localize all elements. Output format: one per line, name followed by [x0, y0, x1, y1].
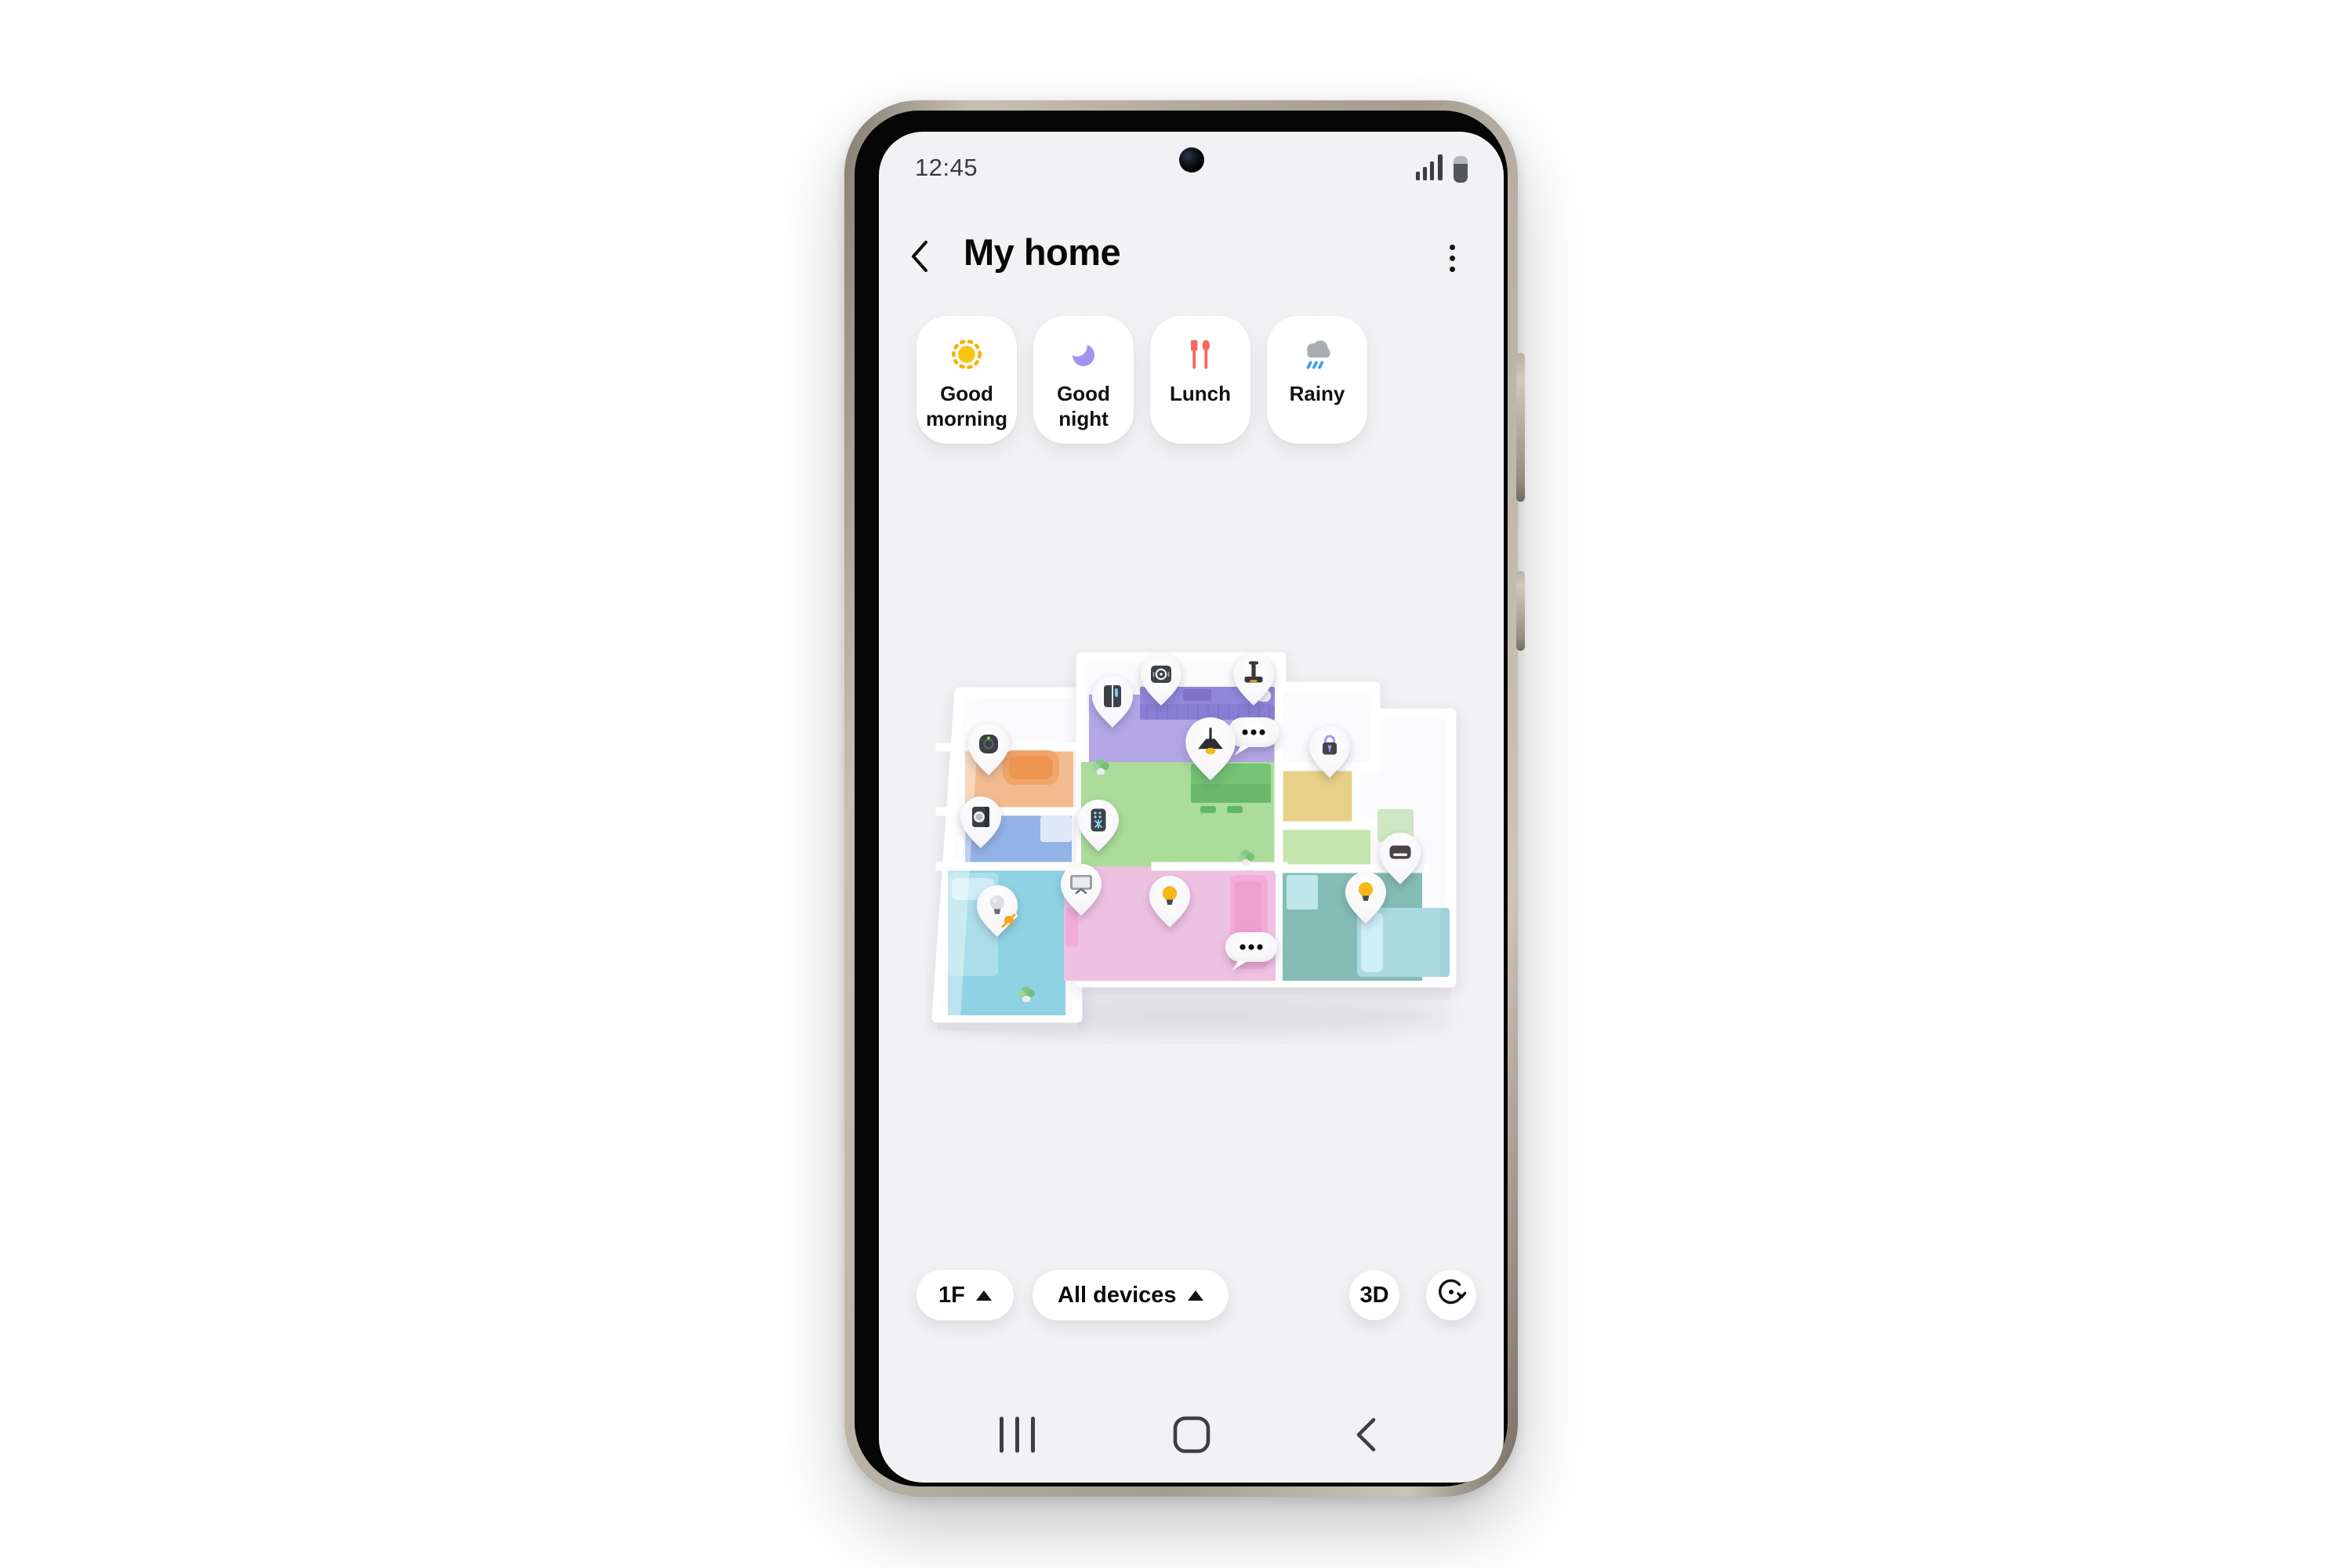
- back-button[interactable]: [907, 237, 934, 276]
- bed-right-foot: [1440, 908, 1450, 977]
- view-3d-label: 3D: [1359, 1283, 1388, 1308]
- floor-label: 1F: [938, 1283, 965, 1308]
- floor-map[interactable]: [924, 649, 1468, 1044]
- status-time: 12:45: [915, 154, 978, 182]
- volume-button: [1516, 353, 1525, 502]
- desktop-canvas: 12:45: [0, 0, 2352, 1568]
- routine-label: Rainy: [1290, 381, 1345, 406]
- routine-card-good-morning[interactable]: Good morning: [916, 316, 1017, 444]
- cyan-cube: [1287, 875, 1318, 909]
- device-filter-chip[interactable]: All devices: [1033, 1270, 1229, 1320]
- floor-selector-chip[interactable]: 1F: [916, 1270, 1014, 1320]
- more-options-button[interactable]: [1436, 240, 1468, 276]
- phone-frame: 12:45: [844, 100, 1518, 1497]
- signal-icon: [1416, 154, 1445, 184]
- navigation-bar: [879, 1407, 1504, 1462]
- dining-table-face: [1191, 784, 1271, 803]
- routine-label: Lunch: [1170, 381, 1231, 406]
- phone-bezel: 12:45: [855, 111, 1508, 1486]
- chevron-up-icon: [1188, 1290, 1203, 1301]
- recents-button[interactable]: [994, 1414, 1041, 1455]
- rain-cloud-icon: [1298, 335, 1337, 374]
- sun-icon: [947, 335, 986, 374]
- room-storage-yellow: [1283, 767, 1355, 824]
- pink-bench: [1065, 908, 1078, 947]
- chevron-up-icon: [976, 1290, 992, 1301]
- chair-1: [1200, 806, 1216, 813]
- phone-screen: 12:45: [879, 132, 1504, 1483]
- front-camera: [1179, 147, 1204, 172]
- chair-2: [1227, 806, 1243, 813]
- page-title: My home: [964, 230, 1120, 274]
- washing-machine-3d: [1040, 815, 1072, 842]
- back-nav-button[interactable]: [1342, 1414, 1389, 1455]
- battery-icon: [1454, 156, 1468, 183]
- routine-card-good-night[interactable]: Good night: [1033, 316, 1134, 444]
- routine-label: Good morning: [916, 381, 1017, 431]
- stove: [1183, 689, 1211, 701]
- bathtub-inner: [1009, 756, 1053, 779]
- routine-label: Good night: [1033, 381, 1134, 431]
- view-3d-toggle[interactable]: 3D: [1349, 1270, 1399, 1320]
- home-button[interactable]: [1168, 1414, 1215, 1455]
- rotate-icon: [1434, 1275, 1468, 1316]
- routine-card-lunch[interactable]: Lunch: [1150, 316, 1250, 444]
- power-button: [1516, 571, 1525, 651]
- status-icons: [1416, 154, 1468, 184]
- routine-shortcuts: Good morning Good night: [916, 316, 1367, 444]
- moon-icon: [1064, 335, 1103, 374]
- rotate-map-button[interactable]: [1426, 1270, 1476, 1320]
- routine-card-rainy[interactable]: Rainy: [1267, 316, 1367, 444]
- room-hall-strip: [1283, 827, 1370, 866]
- cutlery-icon: [1181, 335, 1220, 374]
- device-filter-label: All devices: [1058, 1283, 1177, 1308]
